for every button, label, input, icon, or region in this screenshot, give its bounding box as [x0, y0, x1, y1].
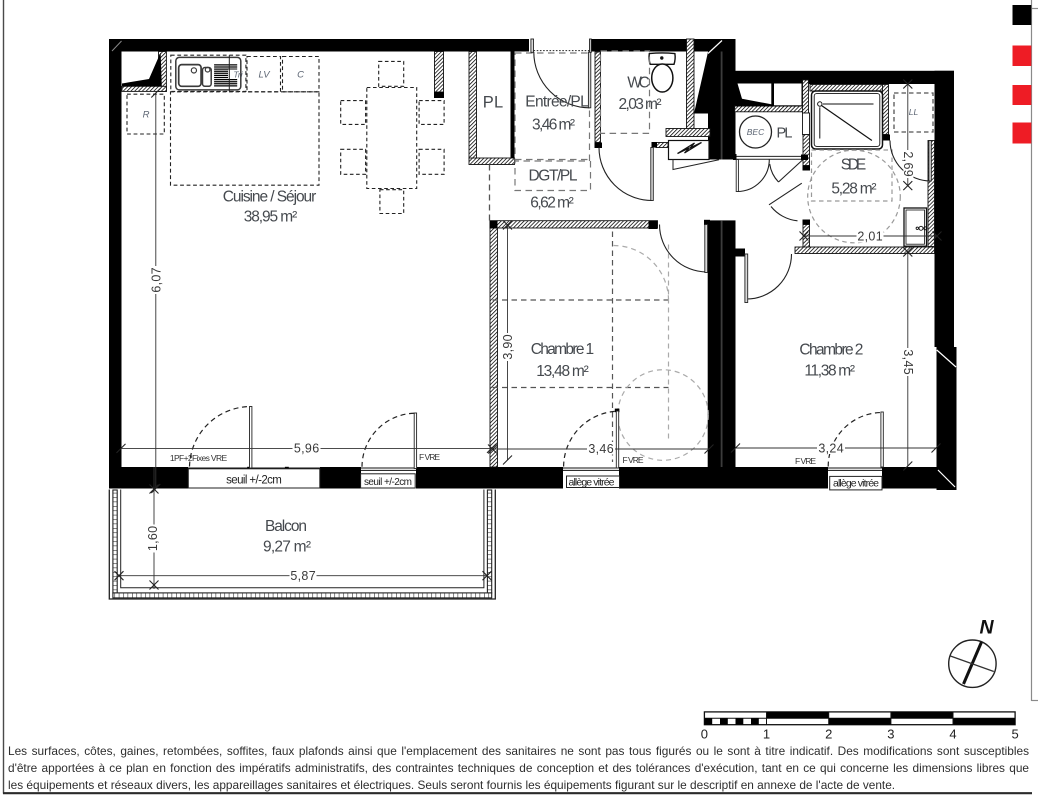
svg-text:Cuisine / Séjour: Cuisine / Séjour	[223, 189, 317, 206]
svg-text:F VRE: F VRE	[419, 452, 440, 462]
svg-text:seuil +/-2cm: seuil +/-2cm	[364, 477, 412, 488]
svg-text:38,95 m²: 38,95 m²	[244, 209, 298, 226]
svg-text:1: 1	[763, 727, 770, 742]
svg-text:4: 4	[949, 727, 956, 742]
svg-text:5,96: 5,96	[294, 441, 319, 455]
svg-text:DGT/PL: DGT/PL	[529, 168, 578, 185]
svg-text:BEC: BEC	[747, 127, 765, 137]
svg-text:allège vitrée: allège vitrée	[569, 477, 615, 489]
svg-text:5,87: 5,87	[290, 569, 315, 583]
svg-text:1PF+2Fixes VRE: 1PF+2Fixes VRE	[170, 453, 228, 463]
svg-text:3: 3	[887, 727, 894, 742]
svg-text:6,62 m²: 6,62 m²	[530, 195, 574, 212]
svg-text:9,27 m²: 9,27 m²	[263, 539, 311, 556]
svg-text:2,01: 2,01	[857, 230, 882, 244]
svg-text:F VRE: F VRE	[623, 455, 644, 465]
svg-text:Entrée/PL: Entrée/PL	[525, 94, 589, 111]
svg-text:3,24: 3,24	[818, 441, 843, 455]
svg-text:1,60: 1,60	[146, 526, 160, 551]
svg-text:PL: PL	[483, 93, 503, 111]
svg-text:2: 2	[825, 727, 832, 742]
svg-text:3,90: 3,90	[501, 334, 515, 359]
svg-text:5: 5	[1011, 727, 1018, 742]
svg-text:3,45: 3,45	[901, 349, 915, 374]
svg-text:13,48 m²: 13,48 m²	[536, 363, 589, 380]
svg-text:2,03 m²: 2,03 m²	[619, 96, 662, 113]
svg-text:5,28 m²: 5,28 m²	[831, 181, 876, 198]
svg-text:Chambre 1: Chambre 1	[531, 341, 594, 358]
svg-text:PL: PL	[777, 126, 793, 142]
svg-text:Chambre 2: Chambre 2	[799, 342, 863, 359]
svg-text:11,38 m²: 11,38 m²	[804, 363, 855, 380]
svg-text:2,69: 2,69	[901, 151, 915, 176]
svg-text:3,46 m²: 3,46 m²	[532, 117, 575, 134]
svg-text:Tri: Tri	[233, 70, 243, 80]
svg-text:R: R	[143, 110, 150, 121]
svg-text:allège vitrée: allège vitrée	[833, 478, 879, 490]
svg-text:6,07: 6,07	[149, 267, 163, 292]
svg-text:LV: LV	[258, 70, 271, 81]
svg-text:Balcon: Balcon	[265, 518, 307, 535]
svg-text:SDE: SDE	[841, 156, 867, 173]
svg-text:C: C	[297, 70, 304, 81]
svg-text:0: 0	[701, 727, 708, 742]
svg-text:3,46: 3,46	[588, 442, 613, 456]
svg-text:F VRE: F VRE	[795, 456, 816, 466]
svg-text:seuil +/-2cm: seuil +/-2cm	[226, 475, 282, 487]
svg-text:WC: WC	[627, 75, 650, 92]
svg-text:N: N	[979, 617, 994, 639]
svg-text:LL: LL	[909, 107, 919, 117]
